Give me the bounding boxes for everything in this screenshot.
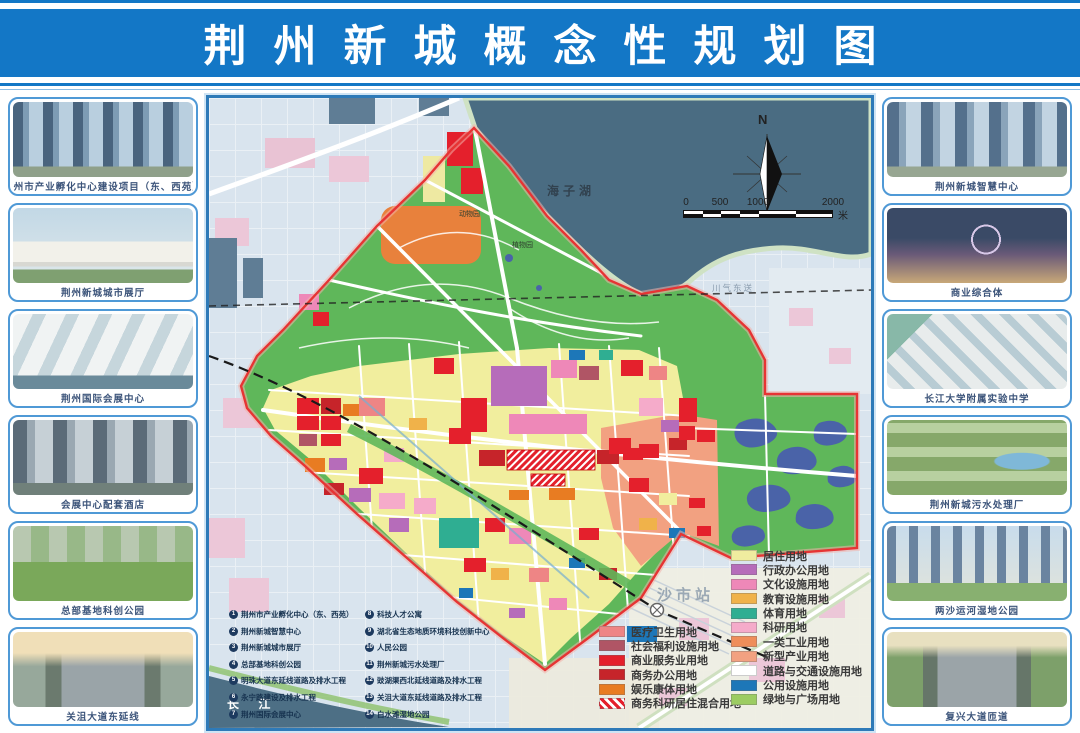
project-card: 荆州国际会展中心 [8,309,198,408]
list-item-text: 关沮大道东延线道路及排水工程 [377,692,482,703]
project-caption: 荆州新城城市展厅 [13,283,193,300]
garden-label: 植物园 [512,240,533,250]
list-item-text: 豉湖渠西北延线道路及排水工程 [377,675,482,686]
north-label: N [758,112,767,127]
legend-item: 绿地与广场用地 [731,694,862,705]
list-item-text: 总部基地科创公园 [241,659,301,670]
list-item-text: 湖北省生态地质环境科技创新中心 [377,626,490,637]
list-item-number: 2 [229,627,238,636]
legend-item: 文化设施用地 [731,579,862,590]
station-label: 沙市站 [657,584,714,605]
project-caption: 会展中心配套酒店 [13,495,193,512]
list-item-text: 明珠大道东延线道路及排水工程 [241,675,346,686]
project-card: 商业综合体 [882,203,1072,302]
list-item: 11荆州新城污水处理厂 [365,659,525,670]
legend-item: 商业服务业用地 [599,655,741,666]
legend-item: 居住用地 [731,550,862,561]
legend-item: 社会福利设施用地 [599,640,741,651]
list-item: 4总部基地科创公园 [229,659,355,670]
project-photo [13,632,193,707]
legend-swatch [731,694,757,705]
legend-swatch [731,622,757,633]
list-item: 3荆州新城城市展厅 [229,642,355,653]
project-caption: 长江大学附属实验中学 [887,389,1067,406]
list-item-text: 荆州国际会展中心 [241,709,301,720]
legend-swatch [731,593,757,604]
project-card: 荆州市产业孵化中心建设项目（东、西苑） [8,97,198,196]
legend-item: 医疗卫生用地 [599,626,741,637]
pipeline-label: 川气东送 [712,282,754,294]
list-item-number: 7 [229,710,238,719]
planning-map-frame: 海子湖 动物园 植物园 川气东送 沙市站 长 江 N 0 500 1000 20… [206,95,874,731]
legend-item: 娱乐康体用地 [599,684,741,695]
legend-swatch [731,550,757,561]
list-item-text: 科技人才公寓 [377,609,422,620]
list-item-number: 12 [365,676,374,685]
legend-item: 公用设施用地 [731,680,862,691]
project-photo [13,526,193,601]
legend-item: 新型产业用地 [731,651,862,662]
list-item: 14白水滩湿地公园 [365,709,525,720]
list-item-text: 荆州新城城市展厅 [241,642,301,653]
list-item-number: 5 [229,676,238,685]
project-list-col1: 1荆州市产业孵化中心（东、西苑） 2荆州新城智慧中心 3荆州新城城市展厅 4总部… [229,609,355,720]
scale-bar-graphic [683,210,833,218]
list-item-number: 4 [229,660,238,669]
legend-swatch [731,608,757,619]
list-item: 13关沮大道东延线道路及排水工程 [365,692,525,703]
legend-swatch [731,651,757,662]
list-item: 10人民公园 [365,642,525,653]
legend-item: 商务科研居住混合用地 [599,698,741,709]
project-photo [887,208,1067,283]
list-item-number: 13 [365,693,374,702]
project-list-col2: 8科技人才公寓 9湖北省生态地质环境科技创新中心 10人民公园 11荆州新城污水… [365,609,525,720]
legend-swatch [731,564,757,575]
project-caption: 荆州新城智慧中心 [887,177,1067,194]
project-photo [887,102,1067,177]
project-caption: 荆州新城污水处理厂 [887,495,1067,512]
list-item: 12豉湖渠西北延线道路及排水工程 [365,675,525,686]
scale-bar: 0 500 1000 2000 米 [683,197,868,218]
list-item-number: 1 [229,610,238,619]
legend-swatch [731,579,757,590]
project-card: 关沮大道东延线 [8,627,198,726]
legend-item: 教育设施用地 [731,593,862,604]
legend-item: 道路与交通设施用地 [731,665,862,676]
list-item-text: 荆州新城污水处理厂 [377,659,445,670]
legend-item: 体育用地 [731,608,862,619]
legend-swatch [599,640,625,651]
header-banner: 荆州新城概念性规划图 [0,9,1080,77]
list-item-text: 荆州市产业孵化中心（东、西苑） [241,609,354,620]
poster-page: 荆州新城概念性规划图 荆州市产业孵化中心建设项目（东、西苑） 荆州新城城市展厅 … [0,0,1080,733]
project-caption: 复兴大道匝道 [887,707,1067,724]
project-caption: 荆州市产业孵化中心建设项目（东、西苑） [13,177,193,194]
project-card: 长江大学附属实验中学 [882,309,1072,408]
project-photo [887,632,1067,707]
project-photo [887,526,1067,601]
project-photo [13,420,193,495]
project-card: 总部基地科创公园 [8,521,198,620]
project-card: 会展中心配套酒店 [8,415,198,514]
header-rule-thick [0,83,1080,86]
lake-label: 海子湖 [547,182,595,199]
legend-item: 商务办公用地 [599,669,741,680]
zoo-label: 动物园 [459,209,480,219]
legend-swatch [731,665,757,676]
list-item-number: 11 [365,660,374,669]
legend-item: 科研用地 [731,622,862,633]
scale-unit: 米 [838,207,848,222]
project-photo [13,102,193,177]
legend-swatch [599,669,625,680]
list-item: 5明珠大道东延线道路及排水工程 [229,675,355,686]
project-caption: 关沮大道东延线 [13,707,193,724]
list-item-number: 14 [365,710,374,719]
list-item: 6永宁路建设及排水工程 [229,692,355,703]
project-photo [887,314,1067,389]
project-card: 荆州新城城市展厅 [8,203,198,302]
project-caption: 两沙运河湿地公园 [887,601,1067,618]
project-card: 两沙运河湿地公园 [882,521,1072,620]
legend-right: 居住用地 行政办公用地 文化设施用地 教育设施用地 体育用地 科研用地 一类工业… [731,550,862,705]
project-photo [13,314,193,389]
page-title: 荆州新城概念性规划图 [177,12,904,74]
list-item-text: 白水滩湿地公园 [377,709,430,720]
project-list: 1荆州市产业孵化中心（东、西苑） 2荆州新城智慧中心 3荆州新城城市展厅 4总部… [229,609,525,720]
list-item-number: 8 [365,610,374,619]
top-rule [0,0,1080,3]
header-rule-thin [0,89,1080,90]
project-card: 荆州新城智慧中心 [882,97,1072,196]
legend-swatch [599,698,625,709]
list-item-text: 荆州新城智慧中心 [241,626,301,637]
legend-swatch [731,636,757,647]
project-card: 复兴大道匝道 [882,627,1072,726]
list-item: 8科技人才公寓 [365,609,525,620]
list-item-number: 3 [229,643,238,652]
legend-swatch [731,680,757,691]
legend-swatch [599,684,625,695]
list-item: 7荆州国际会展中心 [229,709,355,720]
project-caption: 荆州国际会展中心 [13,389,193,406]
legend-label: 商务科研居住混合用地 [631,695,741,711]
legend-item: 行政办公用地 [731,564,862,575]
project-caption: 总部基地科创公园 [13,601,193,618]
legend-item: 一类工业用地 [731,636,862,647]
list-item-number: 10 [365,643,374,652]
legend-left: 医疗卫生用地 社会福利设施用地 商业服务业用地 商务办公用地 娱乐康体用地 商务… [599,626,741,709]
list-item: 1荆州市产业孵化中心（东、西苑） [229,609,355,620]
project-caption: 商业综合体 [887,283,1067,300]
project-photo [13,208,193,283]
legend-label: 绿地与广场用地 [763,691,840,707]
project-photo [887,420,1067,495]
list-item-text: 永宁路建设及排水工程 [241,692,316,703]
legend-swatch [599,655,625,666]
list-item-number: 9 [365,627,374,636]
list-item: 9湖北省生态地质环境科技创新中心 [365,626,525,637]
list-item-text: 人民公园 [377,642,407,653]
list-item: 2荆州新城智慧中心 [229,626,355,637]
legend-swatch [599,626,625,637]
project-card: 荆州新城污水处理厂 [882,415,1072,514]
list-item-number: 6 [229,693,238,702]
